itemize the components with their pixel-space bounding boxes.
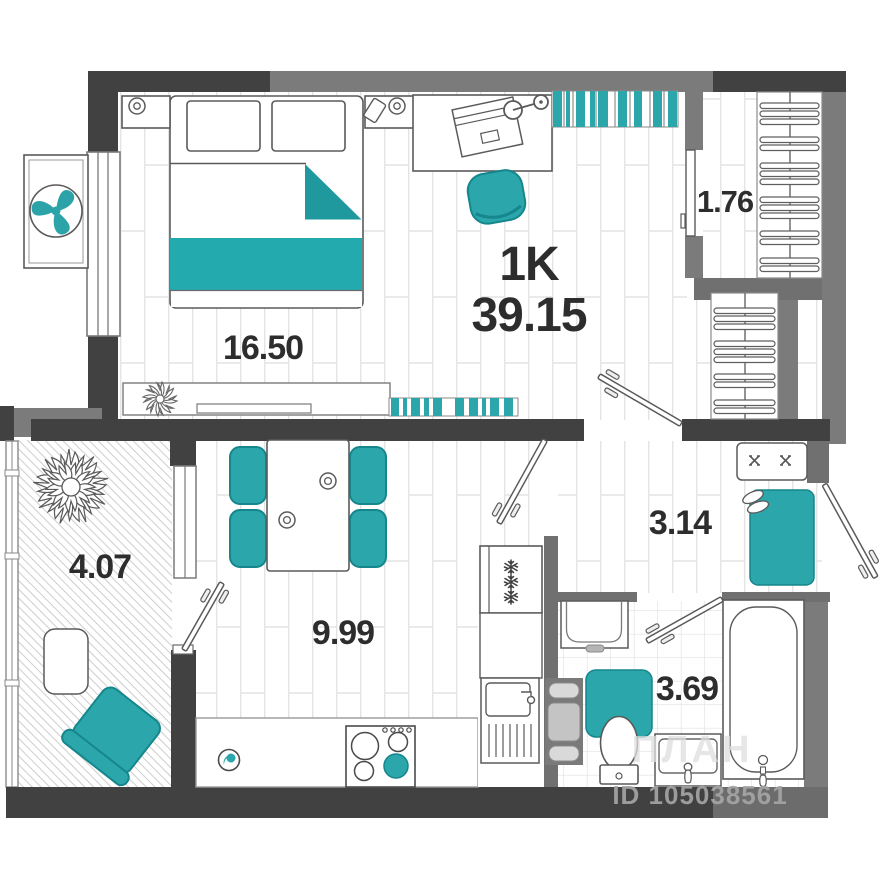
svg-text:3.14: 3.14 bbox=[649, 504, 712, 542]
svg-text:9.99: 9.99 bbox=[312, 614, 374, 652]
svg-text:39.15: 39.15 bbox=[471, 289, 586, 342]
svg-text:4.07: 4.07 bbox=[69, 548, 131, 586]
svg-text:16.50: 16.50 bbox=[223, 329, 303, 367]
svg-text:ID 105038561: ID 105038561 bbox=[612, 780, 787, 810]
svg-text:3.69: 3.69 bbox=[656, 670, 718, 708]
svg-text:1.76: 1.76 bbox=[697, 184, 754, 219]
svg-text:1K: 1K bbox=[499, 238, 560, 291]
svg-text:ПЛАН: ПЛАН bbox=[632, 729, 753, 771]
